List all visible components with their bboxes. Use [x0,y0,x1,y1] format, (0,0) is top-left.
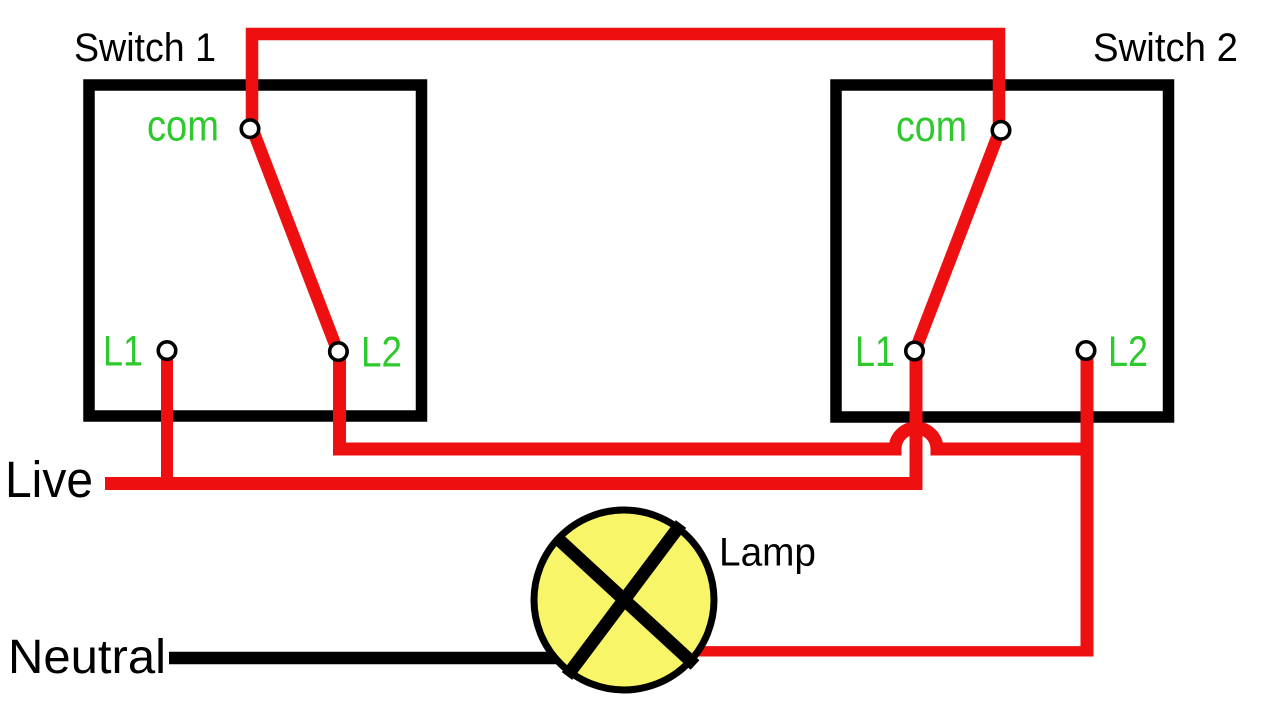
svg-text:L1: L1 [103,328,143,376]
svg-text:L2: L2 [1108,328,1148,376]
svg-text:L1: L1 [855,328,895,376]
svg-text:Neutral: Neutral [8,631,166,684]
svg-text:com: com [147,102,219,151]
svg-text:Switch 1: Switch 1 [74,26,216,70]
svg-text:Live: Live [5,451,93,508]
svg-text:Lamp: Lamp [719,531,816,575]
svg-text:L2: L2 [361,329,402,377]
svg-text:Switch 2: Switch 2 [1093,26,1238,70]
svg-text:com: com [896,102,967,151]
